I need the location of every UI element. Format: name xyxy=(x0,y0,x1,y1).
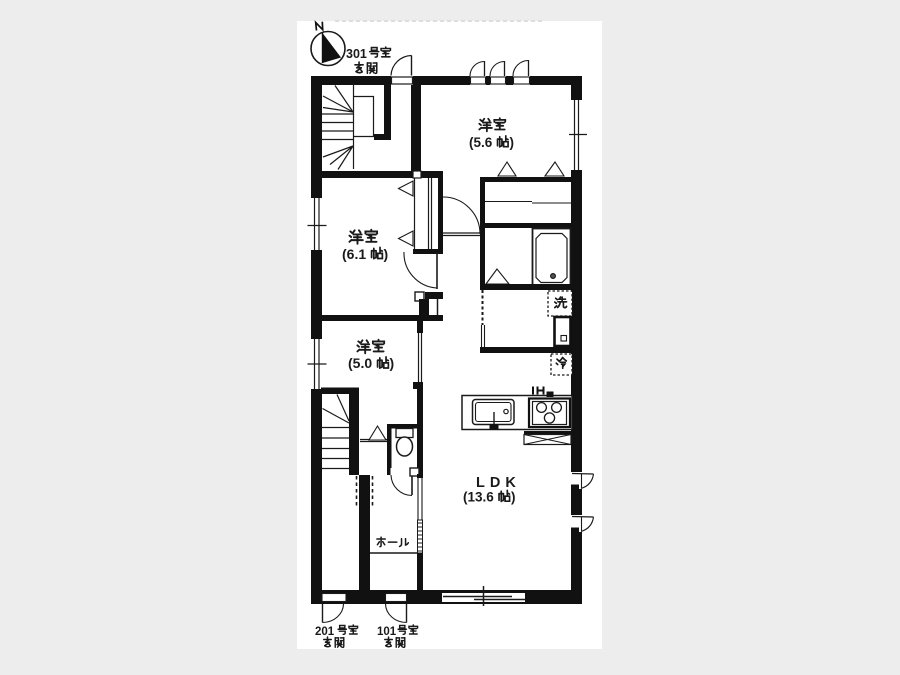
svg-text:): ) xyxy=(510,135,515,150)
svg-text:): ) xyxy=(511,490,516,505)
svg-text:(5.0: (5.0 xyxy=(348,355,372,371)
svg-text:): ) xyxy=(390,355,395,371)
svg-text:101: 101 xyxy=(377,626,397,638)
svg-text:(5.6: (5.6 xyxy=(469,135,493,150)
svg-text:(13.6: (13.6 xyxy=(463,490,494,505)
svg-text:301: 301 xyxy=(346,47,367,61)
svg-text:(6.1: (6.1 xyxy=(342,246,366,262)
svg-text:201: 201 xyxy=(315,626,335,638)
svg-text:): ) xyxy=(384,246,389,262)
